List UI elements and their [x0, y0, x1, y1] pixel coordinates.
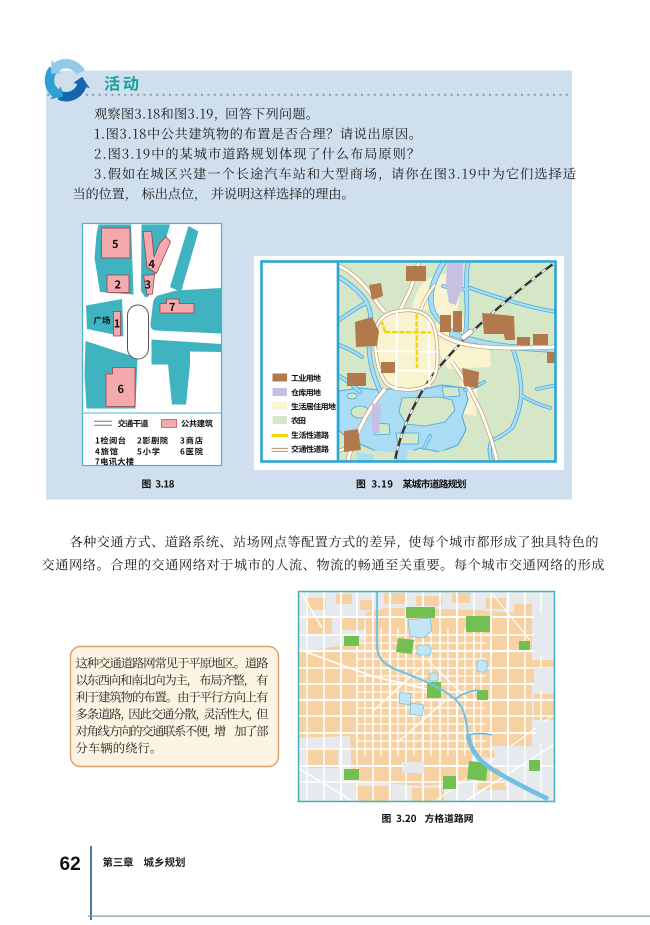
svg-text:62: 62	[60, 854, 81, 875]
